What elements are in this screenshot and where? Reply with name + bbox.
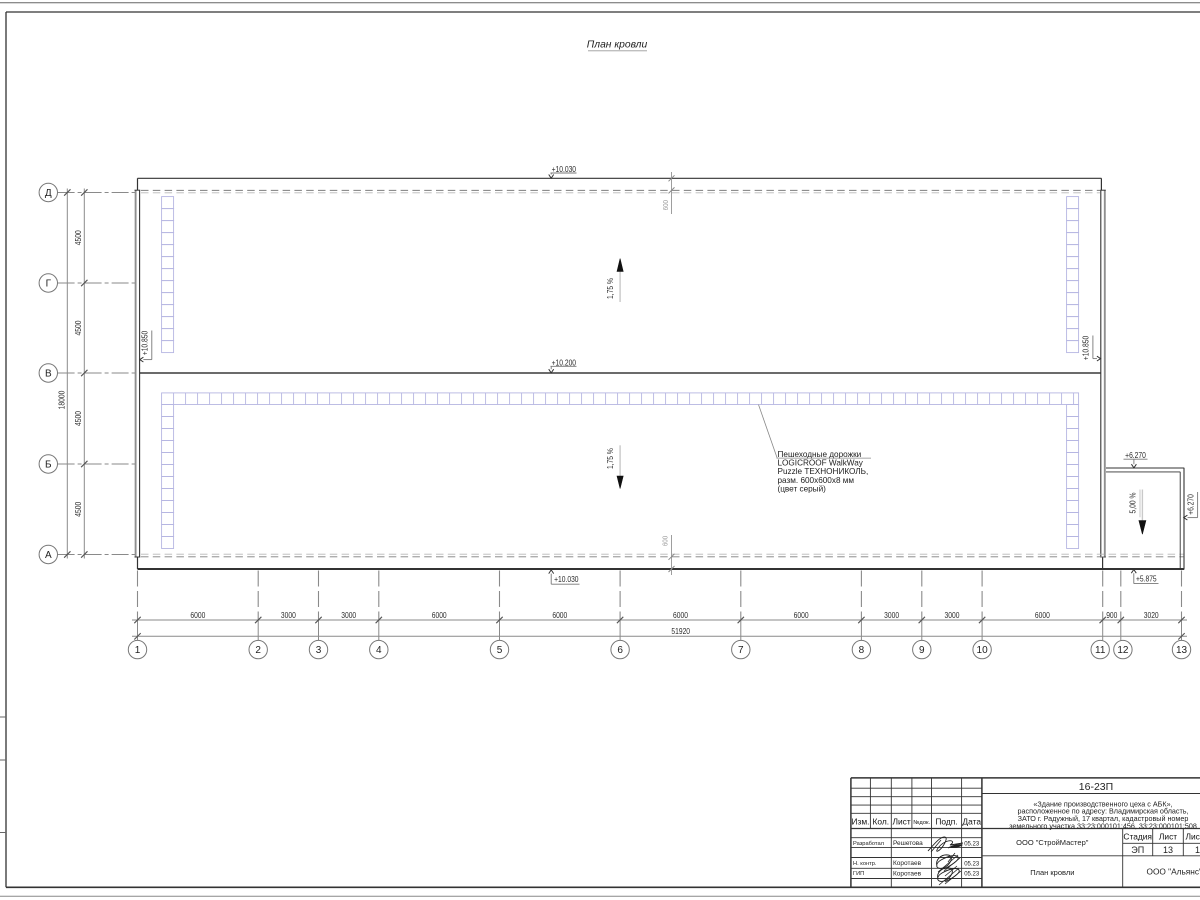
svg-text:+5.875: +5.875 xyxy=(1136,574,1157,584)
svg-text:ООО "СтройМастер": ООО "СтройМастер" xyxy=(1016,838,1089,847)
svg-text:6000: 6000 xyxy=(552,610,567,620)
svg-text:900: 900 xyxy=(1106,610,1117,620)
svg-text:3: 3 xyxy=(316,645,322,656)
svg-text:4500: 4500 xyxy=(73,321,83,336)
svg-text:Разработал: Разработал xyxy=(853,841,884,847)
svg-text:Кол.: Кол. xyxy=(873,817,890,827)
svg-text:(цвет серый): (цвет серый) xyxy=(778,484,827,493)
svg-text:1: 1 xyxy=(135,645,141,656)
svg-text:6000: 6000 xyxy=(673,610,688,620)
svg-text:Стадия: Стадия xyxy=(1123,832,1152,842)
svg-text:План кровли: План кровли xyxy=(1030,868,1074,877)
svg-text:4500: 4500 xyxy=(73,230,83,245)
svg-text:+6.270: +6.270 xyxy=(1186,494,1196,515)
svg-text:5: 5 xyxy=(497,645,503,656)
svg-text:В: В xyxy=(45,369,52,380)
svg-text:6000: 6000 xyxy=(190,610,205,620)
svg-text:Коротаев: Коротаев xyxy=(893,870,922,877)
svg-text:4500: 4500 xyxy=(73,411,83,426)
svg-text:4: 4 xyxy=(376,645,382,656)
svg-text:1: 1 xyxy=(1195,845,1200,855)
svg-text:11: 11 xyxy=(1095,645,1106,656)
svg-text:1,75 %: 1,75 % xyxy=(605,278,615,299)
svg-text:9: 9 xyxy=(919,645,925,656)
svg-text:4500: 4500 xyxy=(73,502,83,517)
svg-text:05.23: 05.23 xyxy=(964,872,980,878)
svg-text:Подп.: Подп. xyxy=(935,817,957,827)
svg-text:А: А xyxy=(45,550,52,561)
svg-text:Листов: Листов xyxy=(1186,832,1200,842)
svg-text:3020: 3020 xyxy=(1144,610,1159,620)
svg-text:16-23П: 16-23П xyxy=(1079,781,1113,793)
svg-text:+10.850: +10.850 xyxy=(140,331,150,355)
svg-text:ЭП: ЭП xyxy=(1131,845,1144,855)
svg-text:600: 600 xyxy=(662,536,670,547)
svg-text:05.23: 05.23 xyxy=(964,841,980,847)
svg-text:6000: 6000 xyxy=(1035,610,1050,620)
svg-text:ООО "Альянс"Проект: ООО "Альянс"Проект xyxy=(1147,867,1200,877)
svg-text:Решетова: Решетова xyxy=(893,840,923,847)
svg-text:Лист: Лист xyxy=(892,817,910,827)
svg-text:№док.: №док. xyxy=(913,820,930,826)
svg-text:земельного участка 33:23:00010: земельного участка 33:23:000101:456, 33:… xyxy=(1009,821,1197,830)
svg-text:Г: Г xyxy=(46,279,52,290)
svg-text:05.23: 05.23 xyxy=(964,861,980,867)
svg-text:Б: Б xyxy=(45,460,52,471)
svg-text:600: 600 xyxy=(663,200,671,211)
svg-text:Лист: Лист xyxy=(1159,832,1177,842)
svg-text:Коротаев: Коротаев xyxy=(893,860,922,867)
svg-text:Изм.: Изм. xyxy=(852,817,870,827)
svg-text:3000: 3000 xyxy=(884,610,899,620)
svg-text:51920: 51920 xyxy=(671,627,690,637)
svg-text:3000: 3000 xyxy=(281,610,296,620)
svg-text:+10.850: +10.850 xyxy=(1081,336,1091,360)
svg-text:6: 6 xyxy=(617,645,623,656)
svg-text:3000: 3000 xyxy=(945,610,960,620)
svg-text:ГИП: ГИП xyxy=(853,871,864,877)
svg-text:6000: 6000 xyxy=(794,610,809,620)
svg-text:10: 10 xyxy=(977,645,989,656)
svg-text:12: 12 xyxy=(1117,645,1129,656)
svg-text:Н. контр.: Н. контр. xyxy=(853,861,877,867)
svg-text:+10.030: +10.030 xyxy=(554,575,578,585)
svg-text:13: 13 xyxy=(1176,645,1188,656)
svg-text:Дата: Дата xyxy=(962,817,981,827)
svg-text:7: 7 xyxy=(738,645,744,656)
svg-text:13: 13 xyxy=(1163,845,1173,855)
svg-text:3000: 3000 xyxy=(341,610,356,620)
svg-text:18000: 18000 xyxy=(57,391,67,410)
svg-text:8: 8 xyxy=(859,645,865,656)
svg-text:1,75 %: 1,75 % xyxy=(605,448,615,469)
svg-text:Д: Д xyxy=(45,188,52,199)
svg-text:5,00 %: 5,00 % xyxy=(1128,492,1138,513)
svg-text:2: 2 xyxy=(255,645,261,656)
svg-text:План кровли: План кровли xyxy=(587,40,648,51)
svg-text:6000: 6000 xyxy=(432,610,447,620)
